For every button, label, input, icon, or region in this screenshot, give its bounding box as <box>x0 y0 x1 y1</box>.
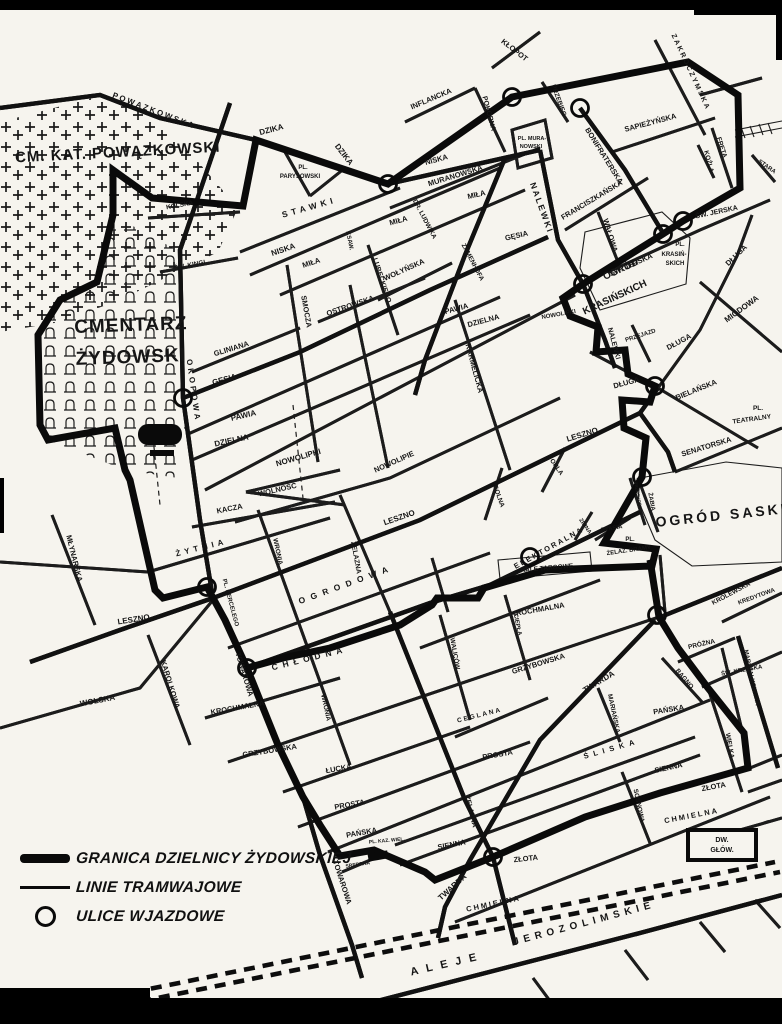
street-label: PAWIA <box>230 408 257 423</box>
street-label: WRONIA <box>319 694 332 722</box>
street-label: SIENNA <box>654 760 684 775</box>
street-label: SENATORSKA <box>680 435 733 459</box>
street-label: DZIELNA <box>466 312 500 329</box>
legend-item-boundary: GRANICA DZIELNICY ŻYDOWSKIEJ <box>14 844 354 873</box>
street-label: KROCHMALNA <box>210 698 266 716</box>
main-station-box <box>688 830 756 860</box>
street-label: SOSNOWA <box>632 788 646 823</box>
street-label: SMOCZA <box>299 295 314 329</box>
street-label: CHMIELNA <box>465 893 521 913</box>
street-label: ZŁOTA <box>513 853 539 865</box>
place-label: ŻYDOWSKI <box>75 345 186 370</box>
place-label: DW. <box>715 837 728 844</box>
place-label: PL. <box>753 405 763 412</box>
street-label: GĘSIA <box>504 228 529 242</box>
legend-item-entrance: ULICE WJAZDOWE <box>14 902 354 931</box>
street-label: GĘSIA <box>211 372 238 387</box>
reservoir-block <box>138 424 182 445</box>
boundary-line-icon <box>14 854 76 863</box>
street-label: KSAW. <box>344 231 354 251</box>
street-label: SIENNA <box>437 837 467 851</box>
street-label: DŁUGA <box>724 242 750 267</box>
street-label: MARSZAŁKOWSKA <box>742 649 760 706</box>
street-label: KACZA <box>216 502 244 516</box>
street-label: DZIELNA <box>214 433 250 449</box>
street-label: MIŁA <box>466 188 486 201</box>
legend-item-tram: LINIE TRAMWAJOWE <box>14 873 354 902</box>
street-label: MŁYNARSKA <box>64 534 84 583</box>
street-label: BONIFRATERSKA <box>583 126 625 186</box>
street-label: KAROLKOWA <box>159 659 182 710</box>
place-label: OGRÓD SASKI <box>655 499 782 530</box>
place-label: CMENTARZ <box>74 313 188 338</box>
place-label: PARYSOWSKI <box>280 174 321 180</box>
street-label: WOLSKA <box>79 693 116 709</box>
place-label: PL. MURA- <box>518 136 547 142</box>
street-label: GRZYBOWSKA <box>242 742 298 760</box>
place-label: TEATRALNY <box>732 413 772 425</box>
street-label: SAPIEŻYŃSKA <box>623 111 677 134</box>
entrance-circle-icon <box>14 906 76 927</box>
map-root: CM. KAT. POWĄZKOWSKICMENTARZŻYDOWSKIOGRÓ… <box>0 0 782 1024</box>
place-label: PL. <box>675 242 685 248</box>
legend-label: ULICE WJAZDOWE <box>75 908 225 926</box>
place-label: PL. <box>625 537 635 543</box>
street-label: MIŁA <box>301 255 322 269</box>
legend-label: LINIE TRAMWAJOWE <box>75 879 242 897</box>
street-label: WAŁOWA <box>601 217 620 253</box>
reservoir-block-small <box>150 450 174 456</box>
place-label: NOWSKI <box>520 144 543 150</box>
street-label: PROSTA <box>482 747 514 761</box>
legend-label: GRANICA DZIELNICY ŻYDOWSKIEJ <box>75 850 352 868</box>
street-label: BIELAŃSKA <box>674 377 718 402</box>
place-label: KRASIŃ- <box>662 250 687 258</box>
street-label: KARMELICKA <box>464 343 486 395</box>
street-label: MIODOWA <box>723 293 761 324</box>
street-label: FRETA <box>715 136 728 159</box>
place-label: GŁÓW. <box>710 845 733 854</box>
street-label: DŁUGA <box>665 331 693 352</box>
tram-line-icon <box>14 886 76 889</box>
street-label: OGRODOWA <box>297 562 395 606</box>
street-label: CEGLANA <box>456 707 502 725</box>
street-label: INFLANCKA <box>409 86 453 112</box>
place-label: PL. <box>298 165 308 171</box>
street-label: ŻELAZNA <box>463 795 479 829</box>
street-label: DŁUGA <box>612 375 641 391</box>
place-label: SKICH <box>666 261 685 267</box>
street-label: DZIKA <box>258 122 284 137</box>
street-label: CHMIELNA <box>663 806 719 825</box>
street-label: PAŃSKA <box>653 703 686 717</box>
street-label: OSTROWSKA <box>325 293 375 318</box>
map-legend: GRANICA DZIELNICY ŻYDOWSKIEJ LINIE TRAMW… <box>14 844 354 931</box>
